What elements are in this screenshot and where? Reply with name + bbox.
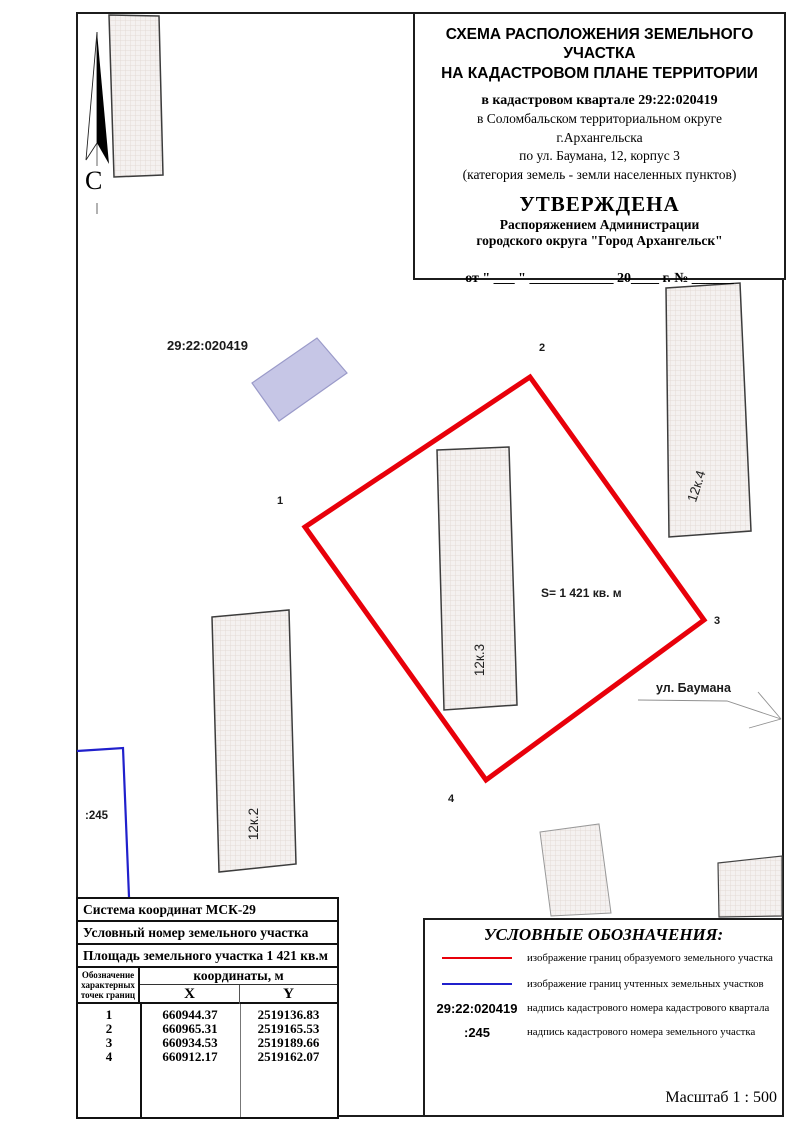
title-land-category: (категория земель - земли населенных пун… bbox=[415, 167, 784, 183]
table-row: 2 660965.31 2519165.53 bbox=[78, 1021, 337, 1035]
legend-item-text: надпись кадастрового номера земельного у… bbox=[527, 1026, 755, 1038]
quarter-number-sample: 29:22:020419 bbox=[437, 1001, 518, 1016]
scheme-title-line2: НА КАДАСТРОВОМ ПЛАНЕ ТЕРРИТОРИИ bbox=[415, 64, 784, 83]
approval-date-line: от " ___ " ____________ 20____ г. № ____… bbox=[415, 271, 784, 287]
parcel-245-label: :245 bbox=[85, 810, 108, 822]
y-column-header: Y bbox=[240, 985, 337, 1004]
table-row: 4 660912.17 2519162.07 bbox=[78, 1049, 337, 1063]
building-12k3-label: 12к.3 bbox=[471, 630, 487, 690]
conditional-number-row: Условный номер земельного участка bbox=[78, 922, 337, 945]
area-row: Площадь земельного участка 1 421 кв.м bbox=[78, 945, 337, 968]
legend-item: :245 надпись кадастрового номера земельн… bbox=[433, 1022, 777, 1042]
blue-line-sample bbox=[442, 983, 512, 985]
building-topleft bbox=[109, 15, 163, 177]
red-line-sample bbox=[442, 957, 512, 959]
title-address: по ул. Баумана, 12, корпус 3 bbox=[415, 148, 784, 164]
coordinate-table: Система координат МСК-29 Условный номер … bbox=[76, 897, 339, 1119]
scale-label: Масштаб 1 : 500 bbox=[665, 1089, 777, 1107]
table-row: 1 660944.37 2519136.83 bbox=[78, 1007, 337, 1021]
x-coordinate: 660912.17 bbox=[140, 1049, 240, 1065]
boundary-point-1: 1 bbox=[277, 495, 283, 507]
parcel-area-label: S= 1 421 кв. м bbox=[541, 586, 622, 600]
title-block: СХЕМА РАСПОЛОЖЕНИЯ ЗЕМЕЛЬНОГО УЧАСТКА НА… bbox=[413, 12, 786, 280]
boundary-point-4: 4 bbox=[448, 793, 454, 805]
legend-item-text: надпись кадастрового номера кадастрового… bbox=[527, 1002, 769, 1014]
legend-item-text: изображение границ образуемого земельног… bbox=[527, 952, 773, 964]
building-12k4 bbox=[666, 283, 751, 537]
y-coordinate: 2519162.07 bbox=[240, 1049, 337, 1065]
approved-stamp: УТВЕРЖДЕНА bbox=[415, 192, 784, 217]
street-leader-lines bbox=[638, 692, 781, 728]
registered-parcel-boundary bbox=[77, 748, 129, 897]
table-body: 1 660944.37 2519136.83 2 660965.31 25191… bbox=[78, 1004, 337, 1117]
approved-by-line2: городского округа "Город Архангельск" bbox=[415, 233, 784, 249]
title-quarter: в кадастровом квартале 29:22:020419 bbox=[415, 93, 784, 109]
boundary-point-2: 2 bbox=[539, 342, 545, 354]
point-number: 4 bbox=[78, 1049, 140, 1065]
table-row: 3 660934.53 2519189.66 bbox=[78, 1035, 337, 1049]
title-city: г.Архангельска bbox=[415, 130, 784, 146]
legend-item: изображение границ учтенных земельных уч… bbox=[433, 974, 777, 994]
building-south bbox=[540, 824, 611, 916]
legend-item-text: изображение границ учтенных земельных уч… bbox=[527, 978, 764, 990]
legend-item: изображение границ образуемого земельног… bbox=[433, 948, 777, 968]
x-column-header: X bbox=[140, 985, 240, 1004]
title-district: в Соломбальском территориальном округе bbox=[415, 111, 784, 127]
coord-system-row: Система координат МСК-29 bbox=[78, 899, 337, 922]
building-lavender bbox=[252, 338, 347, 421]
building-12k2-label: 12к.2 bbox=[245, 794, 261, 854]
table-header: Обозначение характерных точек границ коо… bbox=[78, 968, 337, 1004]
building-southeast bbox=[718, 856, 782, 917]
legend-box: УСЛОВНЫЕ ОБОЗНАЧЕНИЯ: изображение границ… bbox=[423, 918, 784, 1117]
scheme-title-line1: СХЕМА РАСПОЛОЖЕНИЯ ЗЕМЕЛЬНОГО УЧАСТКА bbox=[415, 25, 784, 64]
legend-item: 29:22:020419 надпись кадастрового номера… bbox=[433, 998, 777, 1018]
street-name-label: ул. Баумана bbox=[656, 681, 731, 695]
boundary-point-3: 3 bbox=[714, 615, 720, 627]
parcel-number-sample: :245 bbox=[464, 1025, 490, 1040]
cadastral-quarter-number: 29:22:020419 bbox=[167, 338, 248, 353]
coords-column-header: координаты, м bbox=[140, 968, 337, 985]
cadastral-scheme-page: СХЕМА РАСПОЛОЖЕНИЯ ЗЕМЕЛЬНОГО УЧАСТКА НА… bbox=[0, 0, 800, 1131]
north-label: С bbox=[85, 166, 102, 196]
approved-by-line1: Распоряжением Администрации bbox=[415, 217, 784, 233]
points-column-header: Обозначение характерных точек границ bbox=[78, 968, 140, 1004]
legend-title: УСЛОВНЫЕ ОБОЗНАЧЕНИЯ: bbox=[425, 925, 782, 945]
